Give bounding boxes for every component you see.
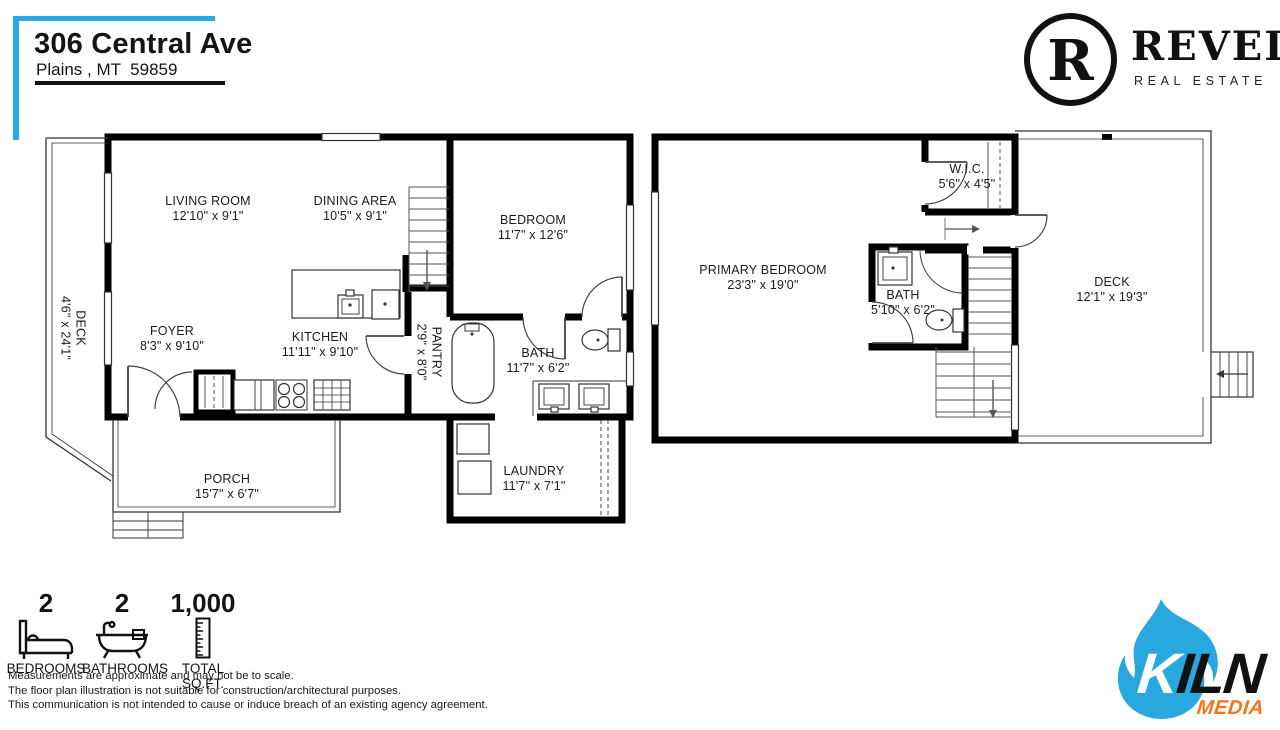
label-wic: W.I.C. 5'6" x 4'5"	[939, 162, 996, 191]
room-dims: 23'3" x 19'0"	[699, 278, 827, 292]
room-dims: 2'9" x 8'0"	[415, 324, 429, 381]
toilet-fixture	[953, 309, 964, 332]
label-bath-floor1: BATH 11'7" x 6'2"	[506, 346, 569, 375]
room-name: W.I.C.	[949, 162, 984, 176]
disclaimer-line: The floor plan illustration is not suita…	[8, 684, 488, 699]
room-name: BATH	[521, 346, 554, 360]
floor1-stairs	[409, 187, 449, 292]
room-name: DINING AREA	[314, 194, 397, 208]
room-dims: 10'5" x 9'1"	[314, 209, 397, 223]
label-deck-floor2: DECK 12'1" x 19'3"	[1076, 275, 1147, 304]
room-name: DECK	[74, 310, 88, 346]
room-dims: 11'11" x 9'10"	[282, 345, 358, 359]
stat-bedrooms: 2 BEDROOMS	[6, 590, 86, 676]
label-kitchen: KITCHEN 11'11" x 9'10"	[282, 330, 358, 359]
label-laundry: LAUNDRY 11'7" x 7'1"	[502, 464, 565, 493]
room-dims: 11'7" x 12'6"	[498, 228, 568, 242]
room-dims: 12'1" x 19'3"	[1076, 290, 1147, 304]
disclaimer-line: Measurements are approximate and may not…	[8, 669, 488, 684]
toilet-fixture	[608, 329, 620, 351]
stat-bathrooms: 2 BATHROOMS	[82, 590, 162, 676]
bed-icon	[6, 619, 86, 659]
kiln-logo-wordmark: KILN	[1135, 648, 1265, 700]
room-name: FOYER	[150, 324, 194, 338]
dryer-fixture	[458, 461, 491, 494]
room-name: PRIMARY BEDROOM	[699, 263, 827, 277]
bathrooms-count: 2	[82, 590, 162, 616]
hallway-arrow	[945, 218, 980, 240]
room-dims: 4'6" x 24'1"	[59, 296, 73, 360]
floor2-stairs	[936, 257, 1012, 418]
sqft-count: 1,000	[163, 590, 243, 616]
bedrooms-count: 2	[6, 590, 86, 616]
label-primary-bedroom: PRIMARY BEDROOM 23'3" x 19'0"	[699, 263, 827, 292]
floor-plan-page: 306 Central Ave Plains , MT 59859 R REVE…	[0, 0, 1280, 730]
room-name: BEDROOM	[500, 213, 566, 227]
disclaimer-block: Measurements are approximate and may not…	[8, 669, 488, 713]
bathtub-icon	[82, 619, 162, 659]
label-dining-area: DINING AREA 10'5" x 9'1"	[314, 194, 397, 223]
room-dims: 11'7" x 6'2"	[506, 361, 569, 375]
disclaimer-line: This communication is not intended to ca…	[8, 698, 488, 713]
room-dims: 8'3" x 9'10"	[140, 339, 204, 353]
label-bath-floor2: BATH 5'10" x 6'2"	[871, 288, 935, 317]
label-pantry: PANTRY 2'9" x 8'0"	[415, 324, 444, 381]
room-dims: 12'10" x 9'1"	[165, 209, 251, 223]
room-dims: 5'6" x 4'5"	[939, 177, 996, 191]
room-name: BATH	[886, 288, 919, 302]
dishwasher-fixture	[234, 380, 274, 410]
room-name: PANTRY	[430, 327, 444, 378]
room-name: DECK	[1094, 275, 1130, 289]
foyer-closet	[205, 376, 223, 408]
room-dims: 11'7" x 7'1"	[502, 479, 565, 493]
ruler-icon	[163, 619, 243, 659]
room-dims: 15'7" x 6'7"	[195, 487, 259, 501]
kiln-logo-media: MEDIA	[1196, 697, 1265, 720]
floor2-openings	[655, 162, 1015, 430]
room-name: LIVING ROOM	[165, 194, 251, 208]
room-name: PORCH	[204, 472, 250, 486]
label-living-room: LIVING ROOM 12'10" x 9'1"	[165, 194, 251, 223]
room-name: LAUNDRY	[504, 464, 565, 478]
label-porch: PORCH 15'7" x 6'7"	[195, 472, 259, 501]
room-dims: 5'10" x 6'2"	[871, 303, 935, 317]
label-bedroom: BEDROOM 11'7" x 12'6"	[498, 213, 568, 242]
washer-fixture	[457, 424, 489, 454]
label-foyer: FOYER 8'3" x 9'10"	[140, 324, 204, 353]
room-name: KITCHEN	[292, 330, 348, 344]
label-deck-floor1: DECK 4'6" x 24'1"	[59, 296, 88, 360]
